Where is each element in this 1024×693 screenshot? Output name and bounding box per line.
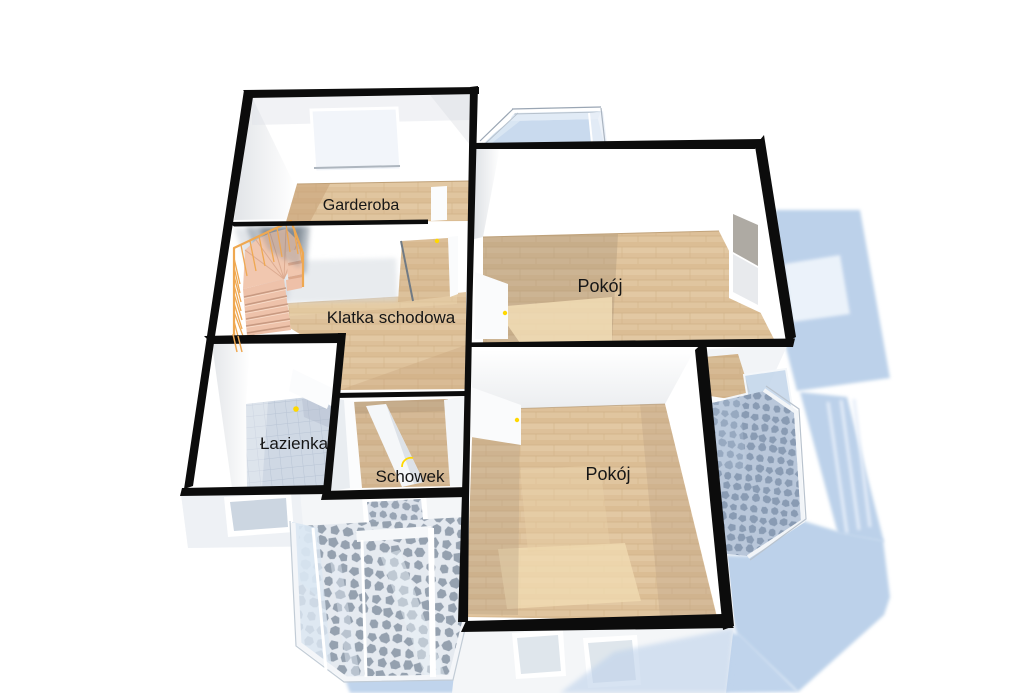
svg-text:Pokój: Pokój [585, 464, 630, 484]
svg-text:Pokój: Pokój [577, 276, 622, 296]
svg-text:Schowek: Schowek [376, 467, 445, 486]
svg-text:Klatka schodowa: Klatka schodowa [327, 308, 456, 327]
svg-text:Garderoba: Garderoba [323, 197, 400, 214]
svg-text:Łazienka: Łazienka [260, 434, 329, 453]
